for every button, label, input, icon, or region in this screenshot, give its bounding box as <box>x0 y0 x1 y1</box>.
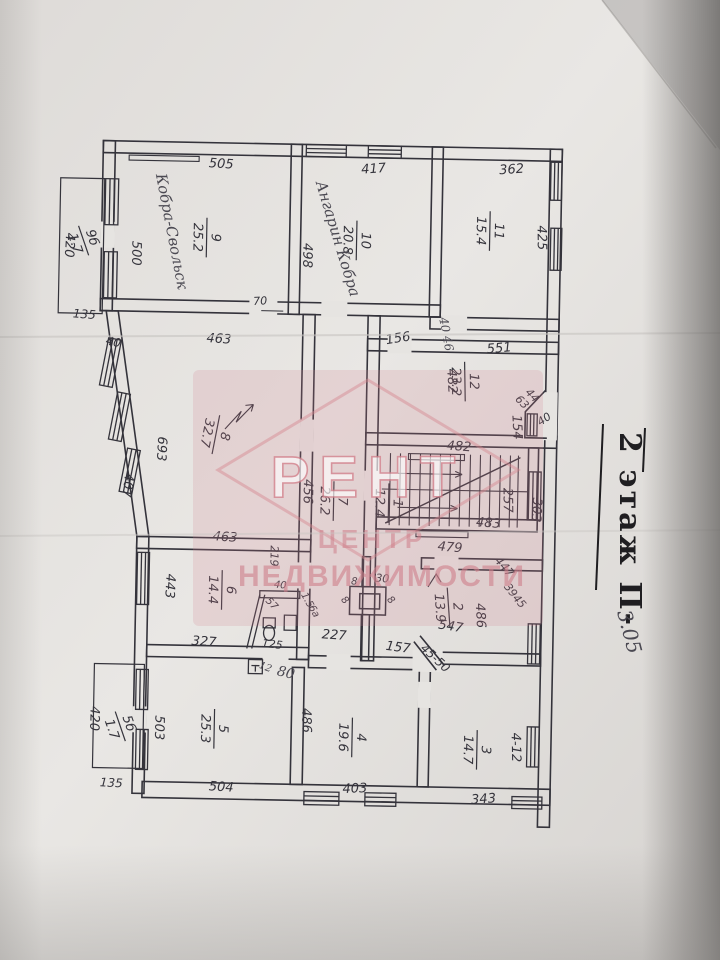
dimension-label: 135 <box>99 775 123 790</box>
dimension-label: 125 <box>261 637 283 652</box>
floor-plan-photo: 5054173625004984254201354070463156551482… <box>0 0 720 960</box>
svg-text:14.7: 14.7 <box>460 735 476 765</box>
dimension-label: 407 <box>118 472 136 499</box>
svg-text:4: 4 <box>353 733 368 742</box>
left-shadow <box>0 0 42 960</box>
dimension-label: 500 <box>128 241 143 266</box>
dimension-label: 420 <box>86 706 101 731</box>
dimension-label: 425 <box>533 225 548 250</box>
dimension-label: 70 <box>253 294 268 308</box>
dimension-label: 343 <box>471 791 497 808</box>
svg-text:19.6: 19.6 <box>335 723 351 752</box>
dimension-label: 498 <box>299 243 314 268</box>
svg-text:15.4: 15.4 <box>473 216 489 245</box>
dimension-label: 157 <box>385 639 412 657</box>
dimension-label: 505 <box>208 156 234 172</box>
dimension-label: 551 <box>486 340 512 357</box>
dimension-label: 693 <box>153 436 169 462</box>
dimension-label: 503 <box>151 715 166 740</box>
dimension-label: 327 <box>191 634 218 651</box>
svg-text:25.2: 25.2 <box>189 223 205 252</box>
dimension-label: 443 <box>161 573 177 599</box>
stamp-floor-text: 2 этаж П- <box>612 432 647 628</box>
watermark-line1: ЦЕНТР <box>318 524 426 554</box>
svg-text:5: 5 <box>215 725 230 734</box>
bottom-shadow <box>0 845 720 960</box>
svg-text:9: 9 <box>208 233 223 242</box>
photo-of-floor-plan: { "photo": { "paper": "#e6e4e1", "paper_… <box>0 0 720 960</box>
svg-text:10: 10 <box>357 232 372 249</box>
dimension-label: 417 <box>361 161 388 178</box>
dimension-label: 463 <box>206 331 232 348</box>
dimension-label: 403 <box>342 781 367 797</box>
watermark-logo: РЕНТ <box>271 445 466 510</box>
dimension-label: 504 <box>208 779 234 795</box>
dimension-label: 4-12 <box>508 733 523 763</box>
watermark: РЕНТ ЦЕНТР НЕДВИЖИМОСТИ <box>193 370 543 626</box>
dimension-label: 135 <box>72 306 96 322</box>
right-shadow <box>642 0 720 960</box>
dimension-label: 486 <box>298 708 313 733</box>
svg-text:3: 3 <box>478 746 493 755</box>
dimension-label: 227 <box>321 627 348 644</box>
svg-text:11: 11 <box>491 223 506 240</box>
watermark-line2: НЕДВИЖИМОСТИ <box>238 560 526 593</box>
dimension-label: 362 <box>499 162 525 179</box>
svg-text:25.3: 25.3 <box>197 714 213 743</box>
